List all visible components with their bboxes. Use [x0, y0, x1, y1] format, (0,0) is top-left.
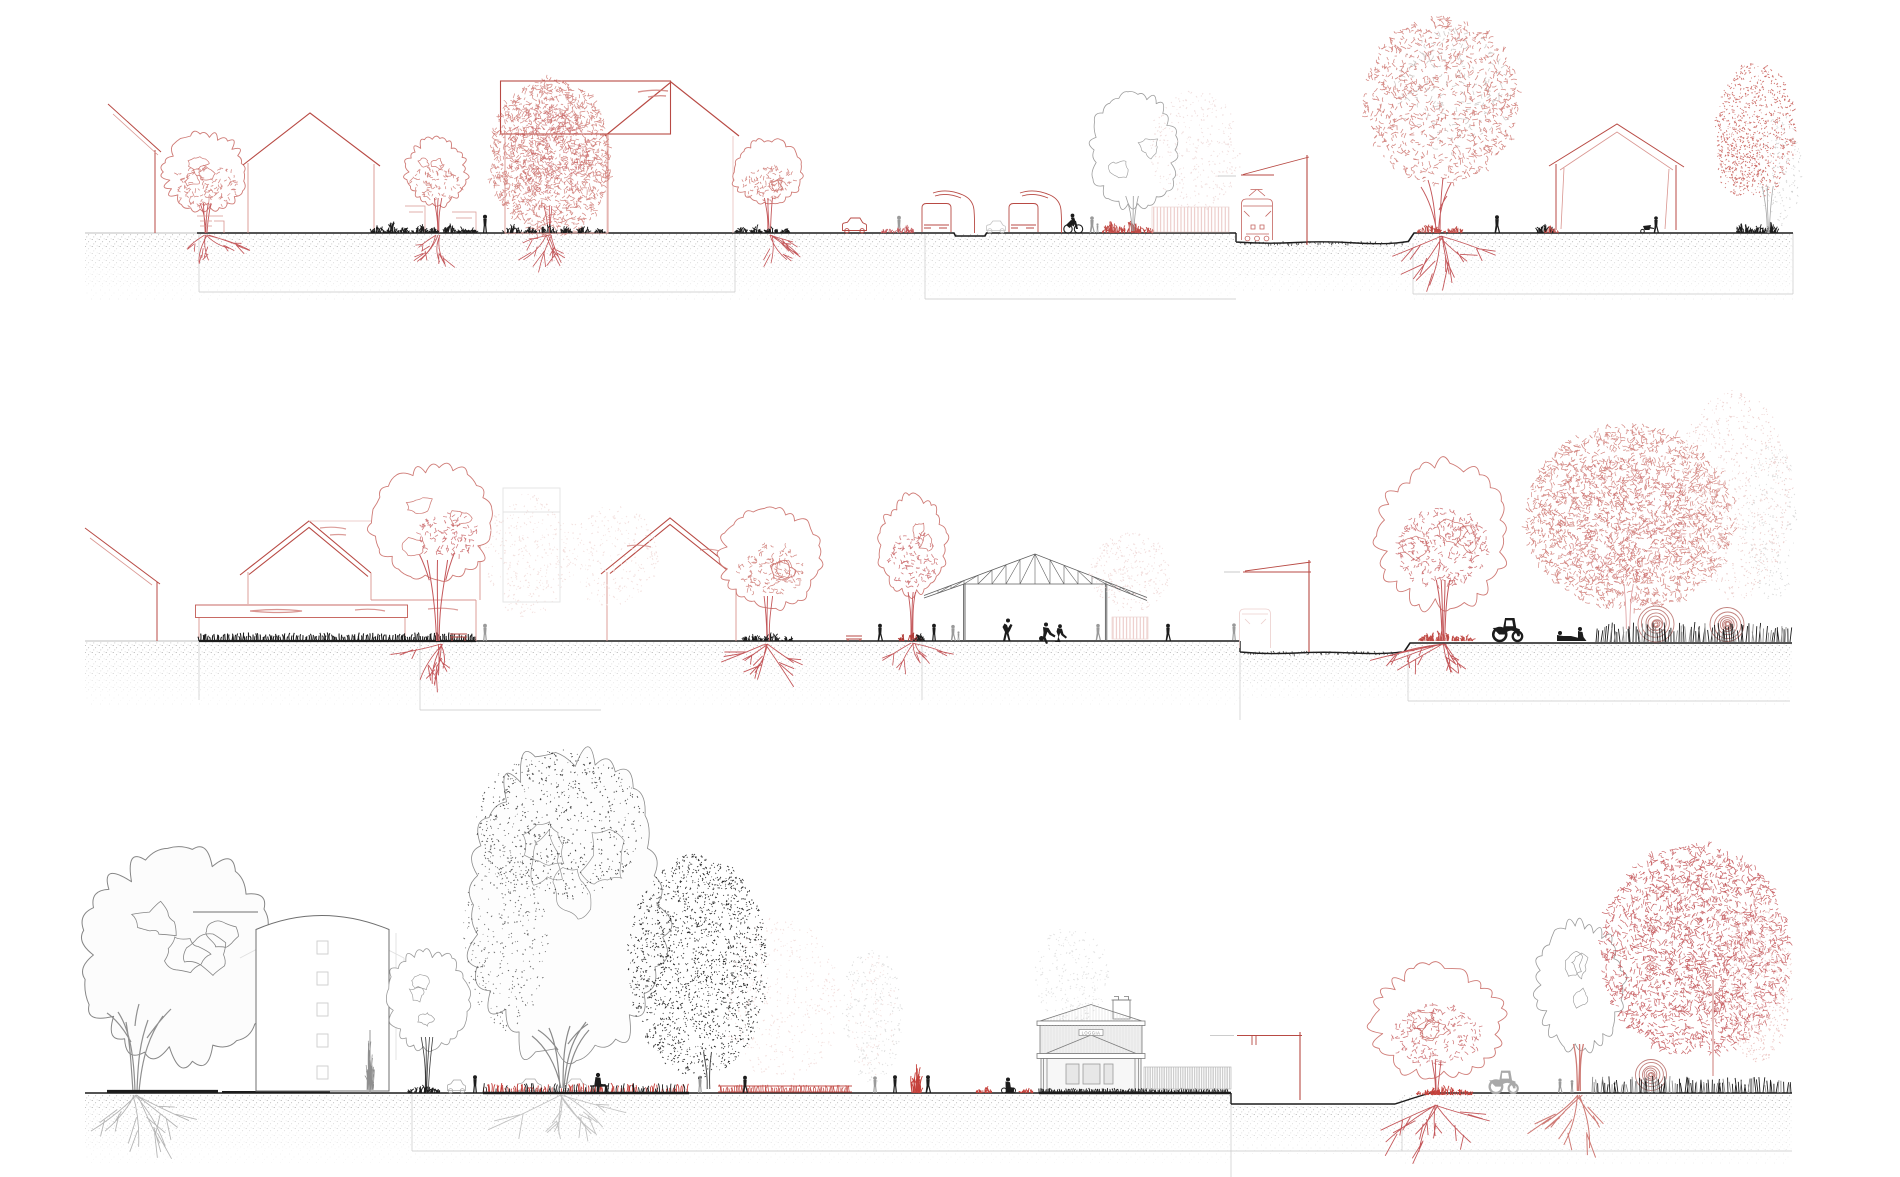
svg-text:LOGGIA: LOGGIA	[1082, 1031, 1101, 1036]
